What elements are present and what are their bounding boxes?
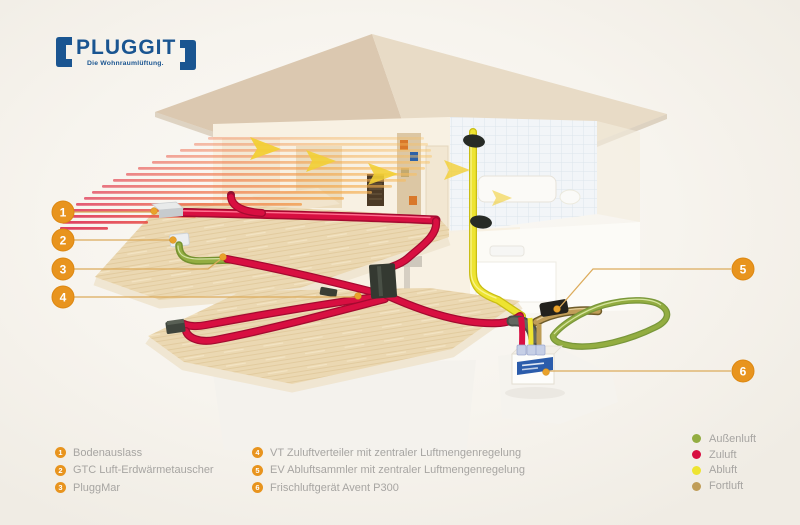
abluft-color-dot [692, 466, 701, 475]
callout-marker-6: 6 [732, 360, 754, 382]
legend-components-left: 1 Bodenauslass 2 GTC Luft-Erdwärmetausch… [55, 444, 214, 497]
aussenluft-color-dot [692, 434, 701, 443]
logo-right-bracket-icon [179, 40, 196, 70]
zuluft-color-dot [692, 450, 701, 459]
legend-item-fortluft: Fortluft [692, 478, 756, 494]
unit-extract-stub [530, 318, 531, 347]
legend-air-types: Außenluft Zuluft Abluft Fortluft [692, 431, 756, 494]
washbasin [490, 246, 524, 256]
bathtub [478, 176, 556, 202]
logo-left-bracket-icon [56, 37, 73, 67]
legend-item-ev: 5 EV Abluftsammler mit zentraler Luftmen… [252, 462, 525, 480]
legend-label: Außenluft [709, 433, 756, 445]
legend-number-badge: 3 [55, 482, 66, 493]
legend-label: PluggMar [73, 482, 120, 494]
legend-item-abluft: Abluft [692, 463, 756, 479]
duct-collar [527, 345, 536, 355]
legend-label: Bodenauslass [73, 447, 142, 459]
legend-item-bodenauslass: 1 Bodenauslass [55, 444, 214, 462]
callout-marker-5: 5 [732, 258, 754, 280]
vt-distributor [369, 263, 397, 299]
legend-number-badge: 1 [55, 447, 66, 458]
legend-components-middle: 4 VT Zuluftverteiler mit zentraler Luftm… [252, 444, 525, 497]
callout-dot-2 [170, 237, 177, 244]
callout-dot-6 [543, 369, 550, 376]
logo-wordmark: PLUGGIT [76, 37, 176, 59]
legend-item-aussenluft: Außenluft [692, 431, 756, 447]
svg-text:2: 2 [60, 234, 67, 248]
callout-dot-1 [151, 208, 158, 215]
floor-outlet-lower [165, 319, 185, 334]
duct-collar [536, 345, 545, 355]
legend-number-badge: 4 [252, 447, 263, 458]
fortluft-color-dot [692, 482, 701, 491]
pluggit-ventilation-infographic: 1 2 3 4 5 6 [0, 0, 800, 525]
callout-dot-5 [554, 306, 561, 313]
callout-dot-4 [355, 293, 362, 300]
callout-dot-3 [220, 254, 227, 261]
book [409, 196, 417, 205]
legend-number-badge: 5 [252, 465, 263, 476]
svg-text:5: 5 [740, 263, 747, 277]
unit-supply-stub [521, 317, 522, 347]
callout-marker-4: 4 [52, 286, 74, 308]
legend-label: Fortluft [709, 480, 743, 492]
pluggit-logo: PLUGGIT Die Wohnraumlüftung. [56, 37, 196, 70]
svg-text:4: 4 [60, 291, 67, 305]
toilet [560, 190, 580, 204]
legend-item-zuluft: Zuluft [692, 447, 756, 463]
legend-number-badge: 2 [55, 465, 66, 476]
legend-label: Frischluftgerät Avent P300 [270, 482, 399, 494]
callout-marker-1: 1 [52, 201, 74, 223]
legend-label: Zuluft [709, 449, 737, 461]
legend-item-pluggmar: 3 PluggMar [55, 479, 214, 497]
legend-number-badge: 6 [252, 482, 263, 493]
duct-collar [517, 345, 526, 355]
logo-tagline: Die Wohnraumlüftung. [76, 60, 176, 67]
legend-item-vt: 4 VT Zuluftverteiler mit zentraler Luftm… [252, 444, 525, 462]
legend-label: VT Zuluftverteiler mit zentraler Luftmen… [270, 447, 521, 459]
legend-item-gtc: 2 GTC Luft-Erdwärmetauscher [55, 462, 214, 480]
legend-label: Abluft [709, 464, 737, 476]
svg-text:6: 6 [740, 365, 747, 379]
svg-text:3: 3 [60, 263, 67, 277]
legend-item-unit: 6 Frischluftgerät Avent P300 [252, 479, 525, 497]
legend-label: EV Abluftsammler mit zentraler Luftmenge… [270, 464, 525, 476]
callout-marker-3: 3 [52, 258, 74, 280]
svg-text:1: 1 [60, 206, 67, 220]
legend-label: GTC Luft-Erdwärmetauscher [73, 464, 214, 476]
callout-marker-2: 2 [52, 229, 74, 251]
